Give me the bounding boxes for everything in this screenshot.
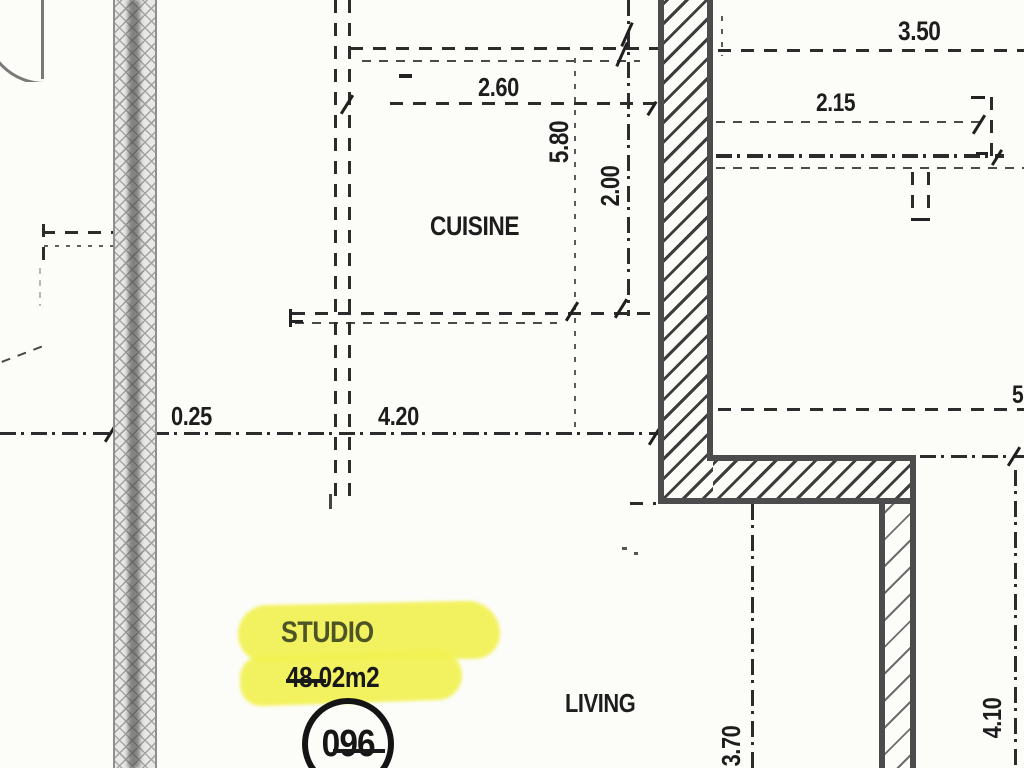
- dim-line-right-top: [920, 455, 1024, 458]
- wall-edge: [910, 504, 916, 768]
- wall-edge: [910, 455, 916, 504]
- dim-label-3-70: 3.70: [718, 721, 744, 768]
- wall-edge: [879, 504, 885, 768]
- strike-mark: [333, 749, 385, 753]
- ext-line-wall-top: [721, 16, 723, 56]
- dim-line-mid: [292, 312, 658, 315]
- tick: [340, 94, 354, 114]
- scan-mark: [622, 547, 627, 550]
- wall-edge: [658, 498, 916, 504]
- strike-mark: [286, 679, 326, 683]
- wall-right-vertical: [658, 0, 713, 504]
- line-entry-lower-2: [716, 167, 1024, 169]
- dim-line-kitchen-width-2: [362, 60, 640, 62]
- unit-number-label: 096: [321, 723, 374, 766]
- dim-line-kitchen-height: [574, 58, 576, 434]
- dim-label-0-25: 0.25: [171, 403, 212, 429]
- dim-line-right-partial: [718, 408, 1024, 411]
- dim-label-2-60: 2.60: [478, 74, 519, 100]
- dim-line-upper-middle: [390, 102, 658, 105]
- dim-line-width-left: [0, 432, 113, 435]
- floor-plan-scan: 3.50 2.60 2.15 5.80 2.00 CUISINE 0.25 4.…: [0, 0, 1024, 768]
- dim-line-living-height: [751, 504, 754, 768]
- closet-end-tick: [42, 224, 45, 262]
- wall-left-core: [128, 0, 140, 768]
- line-closet-top: [42, 231, 113, 234]
- wall-left: [113, 0, 157, 768]
- wall-edge: [707, 0, 713, 457]
- dim-label-2-15: 2.15: [816, 91, 855, 116]
- door-swing-arc-curve: [0, 55, 45, 82]
- room-label-living: LIVING: [565, 690, 635, 716]
- tick-corner-h: [291, 320, 303, 323]
- scan-mark: [634, 552, 638, 555]
- dim-label-5-partial: 5: [1012, 383, 1023, 408]
- dim-label-4-20: 4.20: [378, 403, 419, 429]
- dim-line-right-height: [1014, 470, 1017, 768]
- duct-bottom: [911, 218, 930, 221]
- tick-bar: [971, 96, 985, 99]
- dim-label-3-50: 3.50: [898, 18, 940, 45]
- dim-label-2-00: 2.00: [597, 161, 623, 211]
- tick-bar: [329, 494, 332, 509]
- room-label-kitchen: CUISINE: [430, 213, 519, 240]
- dim-line-top-right: [718, 49, 1024, 52]
- door-arc-dashes: [1, 343, 48, 363]
- dim-line-kitchen-depth: [627, 0, 630, 316]
- partition-dashed-right: [348, 0, 351, 504]
- scan-mark: [399, 74, 412, 78]
- wall-edge: [707, 455, 916, 461]
- dim-line-entry-width: [716, 121, 988, 123]
- dim-terminator-right: [990, 97, 993, 163]
- line-closet-bottom: [44, 245, 113, 247]
- partition-dashed-left: [334, 0, 337, 504]
- tick: [614, 298, 628, 318]
- wall-edge: [658, 0, 664, 504]
- dim-label-5-80: 5.80: [546, 117, 572, 167]
- tick-bar: [976, 152, 988, 155]
- wall-right-horizontal: [713, 455, 916, 504]
- dim-line-kitchen-width: [350, 47, 658, 50]
- duct-right: [927, 172, 930, 220]
- tick-corner-v: [289, 309, 292, 327]
- faint-edge: [39, 268, 41, 306]
- duct-left: [911, 172, 914, 220]
- dim-line-studio-width: [153, 432, 658, 435]
- dim-label-4-10: 4.10: [979, 693, 1005, 743]
- unit-name-label: STUDIO: [281, 618, 374, 648]
- line-wall-foot: [630, 502, 656, 505]
- line-entry-lower: [716, 154, 1004, 158]
- tick: [972, 114, 986, 134]
- unit-number-circle: 096: [302, 698, 394, 768]
- door-swing-arc: [0, 55, 45, 82]
